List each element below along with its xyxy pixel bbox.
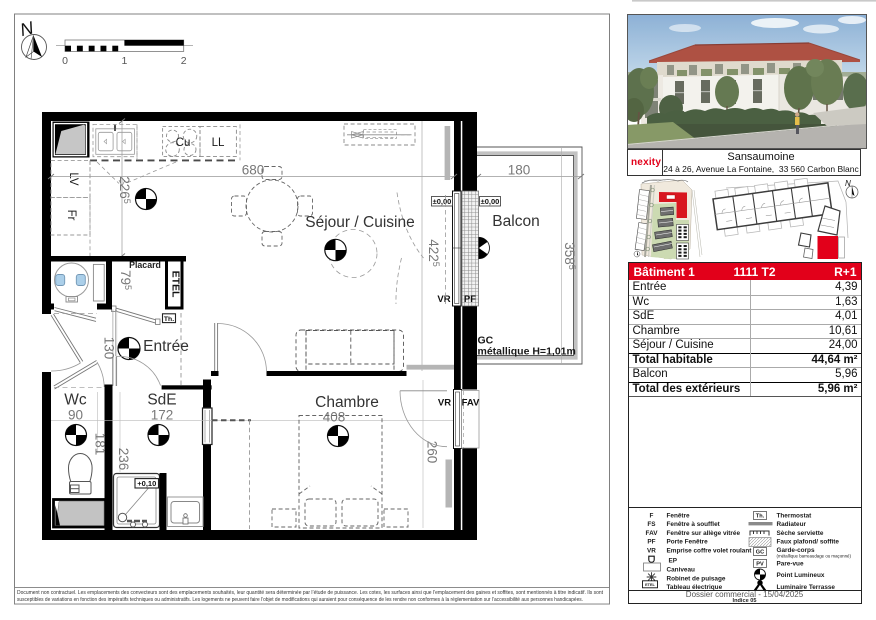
svg-text:FS: FS [647,521,656,528]
svg-text:181: 181 [93,433,108,456]
svg-text:F: F [649,512,653,519]
svg-text:EP: EP [668,557,677,564]
svg-text:N: N [845,179,851,188]
svg-text:±0,00: ±0,00 [481,197,500,206]
svg-text:Placard: Placard [129,260,161,270]
svg-text:1: 1 [121,55,127,67]
svg-text:0: 0 [62,55,68,67]
svg-text:Radiateur: Radiateur [776,521,806,528]
svg-text:Robinet de puisage: Robinet de puisage [666,576,725,583]
svg-text:130: 130 [102,337,117,360]
svg-text:Document non contractuel. Les: Document non contractuel. Les emplacemen… [17,590,604,596]
svg-text:ETEL: ETEL [645,583,655,587]
svg-text:Fenêtre: Fenêtre [666,512,690,519]
svg-text:Thermostat: Thermostat [776,512,812,519]
svg-text:Porte Fenêtre: Porte Fenêtre [666,539,708,546]
svg-text:FAV: FAV [645,530,658,537]
svg-text:Fenêtre sur allège vitrée: Fenêtre sur allège vitrée [666,530,740,537]
svg-text:GC: GC [755,550,763,556]
svg-text:Entrée: Entrée [143,338,189,355]
svg-text:Pare-vue: Pare-vue [776,560,803,567]
svg-text:susceptibles de variations en: susceptibles de variations en fonction d… [17,597,583,603]
svg-text:Cu: Cu [176,137,191,149]
svg-text:Sèche serviette: Sèche serviette [776,530,823,537]
svg-text:PF: PF [464,294,476,305]
svg-text:Point Lumineux: Point Lumineux [776,572,824,579]
svg-text:PF: PF [647,539,655,546]
svg-text:Fenêtre à soufflet: Fenêtre à soufflet [666,521,720,528]
svg-text:408: 408 [323,410,346,425]
svg-text:VR: VR [438,398,451,409]
svg-text:LV: LV [67,172,79,186]
svg-text:Wc: Wc [64,392,87,409]
svg-text:236: 236 [116,448,131,471]
svg-text:VR: VR [437,294,450,305]
svg-text:VR: VR [647,547,656,554]
svg-text:Chambre: Chambre [315,394,379,411]
svg-text:PV: PV [756,562,764,568]
svg-text:FAV: FAV [462,398,480,409]
svg-text:Balcon: Balcon [492,213,539,230]
svg-text:Fr: Fr [65,210,77,221]
svg-text:Th.: Th. [164,316,174,323]
svg-text:Caniveau: Caniveau [666,567,695,574]
svg-text:Faux plafond/ soffite: Faux plafond/ soffite [776,539,839,546]
svg-text:SdE: SdE [147,392,176,409]
svg-text:180: 180 [508,163,531,178]
svg-text:Séjour / Cuisine: Séjour / Cuisine [305,214,414,231]
svg-text:680: 680 [242,163,265,178]
svg-text:Emprise coffre volet roulant: Emprise coffre volet roulant [666,547,752,554]
svg-text:métallique H=1,01m: métallique H=1,01m [478,346,576,358]
svg-text:2: 2 [181,55,187,67]
svg-text:Th.: Th. [755,514,764,520]
svg-text:LL: LL [212,137,225,149]
svg-text:(métallique barreaudage ou maç: (métallique barreaudage ou maçonné) [776,554,851,559]
svg-text:+0,10: +0,10 [137,479,156,488]
svg-text:±0,00: ±0,00 [433,197,452,206]
svg-text:ETEL: ETEL [170,271,182,298]
